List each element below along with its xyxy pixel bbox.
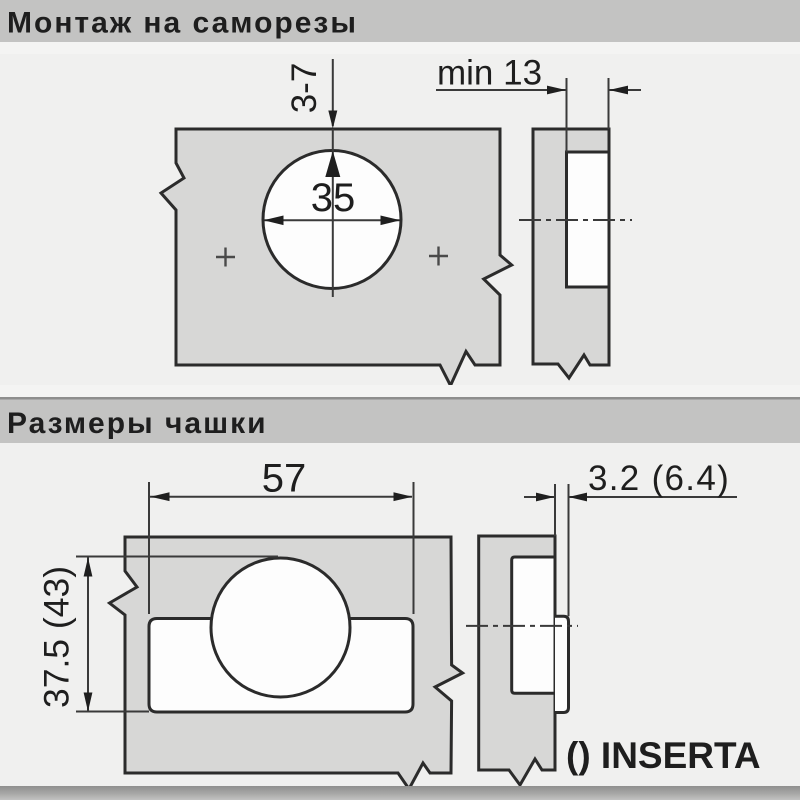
svg-text:3.2 (6.4): 3.2 (6.4) [588,459,730,498]
svg-text:min 13: min 13 [437,54,542,93]
svg-text:Монтаж на саморезы: Монтаж на саморезы [7,7,358,40]
svg-text:57: 57 [262,457,307,501]
svg-text:37.5 (43): 37.5 (43) [37,566,77,708]
svg-text:3-7: 3-7 [285,63,324,114]
svg-text:35: 35 [311,176,356,220]
svg-text:() INSERTA: () INSERTA [566,735,761,776]
svg-text:Размеры чашки: Размеры чашки [7,407,268,440]
